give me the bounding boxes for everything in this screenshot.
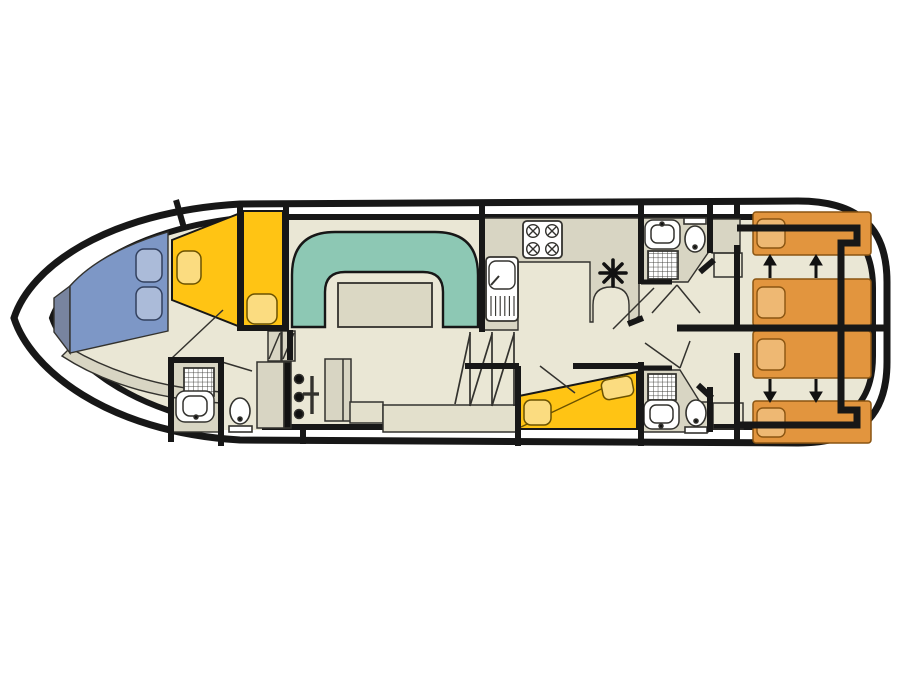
toilet-drain xyxy=(693,245,697,249)
boat-floor-plan xyxy=(0,0,900,675)
console-knob xyxy=(295,393,304,402)
toilet-base xyxy=(229,426,252,432)
toilet-base xyxy=(684,218,706,224)
aft-berth-pillow xyxy=(757,219,785,248)
vberth-pillow xyxy=(136,249,162,282)
aft-berth-pillow xyxy=(757,287,785,318)
basin-drain xyxy=(660,222,664,226)
shower-grid-icon xyxy=(648,251,678,279)
helm-console-edge xyxy=(284,362,291,428)
floor-plan-svg xyxy=(0,0,900,675)
basin-drain xyxy=(659,424,663,428)
vberth-pillow xyxy=(136,287,162,320)
shower-grid-icon xyxy=(648,374,676,400)
helm-console xyxy=(257,362,284,428)
console-knob xyxy=(295,375,304,384)
toilet-drain xyxy=(238,417,242,421)
step-unit xyxy=(350,402,383,423)
toilet-base xyxy=(685,427,707,433)
basin-drain xyxy=(194,415,198,419)
wardrobe xyxy=(325,359,351,421)
aft-berth-pillow xyxy=(757,339,785,370)
dinette-table xyxy=(338,283,432,327)
helm-star-mark xyxy=(600,260,626,286)
fwd-berth-pillow xyxy=(247,294,277,324)
mid-berth-pillow xyxy=(524,400,551,425)
toilet-drain xyxy=(694,419,698,423)
console-knob xyxy=(295,410,304,419)
fwd-berth-pillow xyxy=(177,251,201,284)
sink-basin xyxy=(489,261,515,289)
side-counter xyxy=(383,405,516,432)
